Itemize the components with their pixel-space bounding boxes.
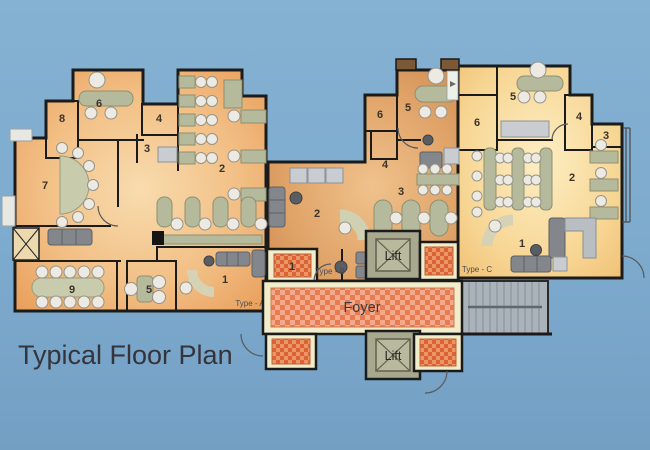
room-a9-label: 9 xyxy=(69,284,75,296)
room-b6-label: 6 xyxy=(377,109,383,121)
unit-a-type-label: Type - A xyxy=(235,299,265,308)
room-c6-label: 6 xyxy=(474,117,480,129)
room-a3-label: 3 xyxy=(144,143,150,155)
room-c2-label: 2 xyxy=(569,172,575,184)
balcony-upper-right xyxy=(420,242,458,280)
room-b4-label: 4 xyxy=(382,159,389,171)
window-sill xyxy=(10,129,32,141)
unit-c-type-label: Type - C xyxy=(462,265,492,274)
lift-upper-label: Lift xyxy=(385,249,402,263)
lift-upper: Lift xyxy=(366,231,420,279)
foyer-label: Foyer xyxy=(343,300,380,316)
room-a8-label: 8 xyxy=(59,113,65,125)
plan-title: Typical Floor Plan xyxy=(18,340,233,370)
lift-lower: Lift xyxy=(366,331,420,379)
room-c4-label: 4 xyxy=(576,111,583,123)
room-a3-fixture xyxy=(158,147,177,162)
room-a1-label: 1 xyxy=(222,274,228,286)
room-a7-label: 7 xyxy=(42,180,48,192)
room-a4-label: 4 xyxy=(156,113,163,125)
floor-plan-page: 5 6 4 3 2 1 Type - C xyxy=(0,0,650,450)
room-c2-furniture xyxy=(472,140,618,220)
unit-type-c: 5 6 4 3 2 1 Type - C xyxy=(458,62,644,278)
balcony-lower-left xyxy=(266,334,316,369)
service-shaft xyxy=(441,59,459,70)
unit-b-type-label: Type - B xyxy=(315,267,345,276)
room-b2-label: 2 xyxy=(314,208,320,220)
room-b1-label: 1 xyxy=(289,261,295,273)
room-c3-label: 3 xyxy=(603,130,609,142)
window-sill xyxy=(2,196,15,226)
door-arc-foyer-right xyxy=(425,371,447,393)
room-b3-label: 3 xyxy=(398,186,404,198)
room-c5-label: 5 xyxy=(510,91,516,103)
room-b5-label: 5 xyxy=(405,102,411,114)
unit-type-a: 6 8 4 3 7 2 9 5 1 Type - A xyxy=(2,70,267,311)
lift-lower-label: Lift xyxy=(385,349,402,363)
room-a5-label: 5 xyxy=(146,284,152,296)
foyer: Foyer xyxy=(263,281,462,334)
balcony-lower-right xyxy=(414,334,462,371)
column xyxy=(152,231,164,245)
service-shaft xyxy=(396,59,416,70)
door-arc-c-entry xyxy=(622,256,644,278)
room-c1-label: 1 xyxy=(519,238,525,250)
room-a6-label: 6 xyxy=(96,98,102,110)
floor-plan-canvas: 5 6 4 3 2 1 Type - C xyxy=(0,0,650,450)
room-a2-label: 2 xyxy=(219,163,225,175)
door-arc-foyer-left xyxy=(241,334,263,356)
